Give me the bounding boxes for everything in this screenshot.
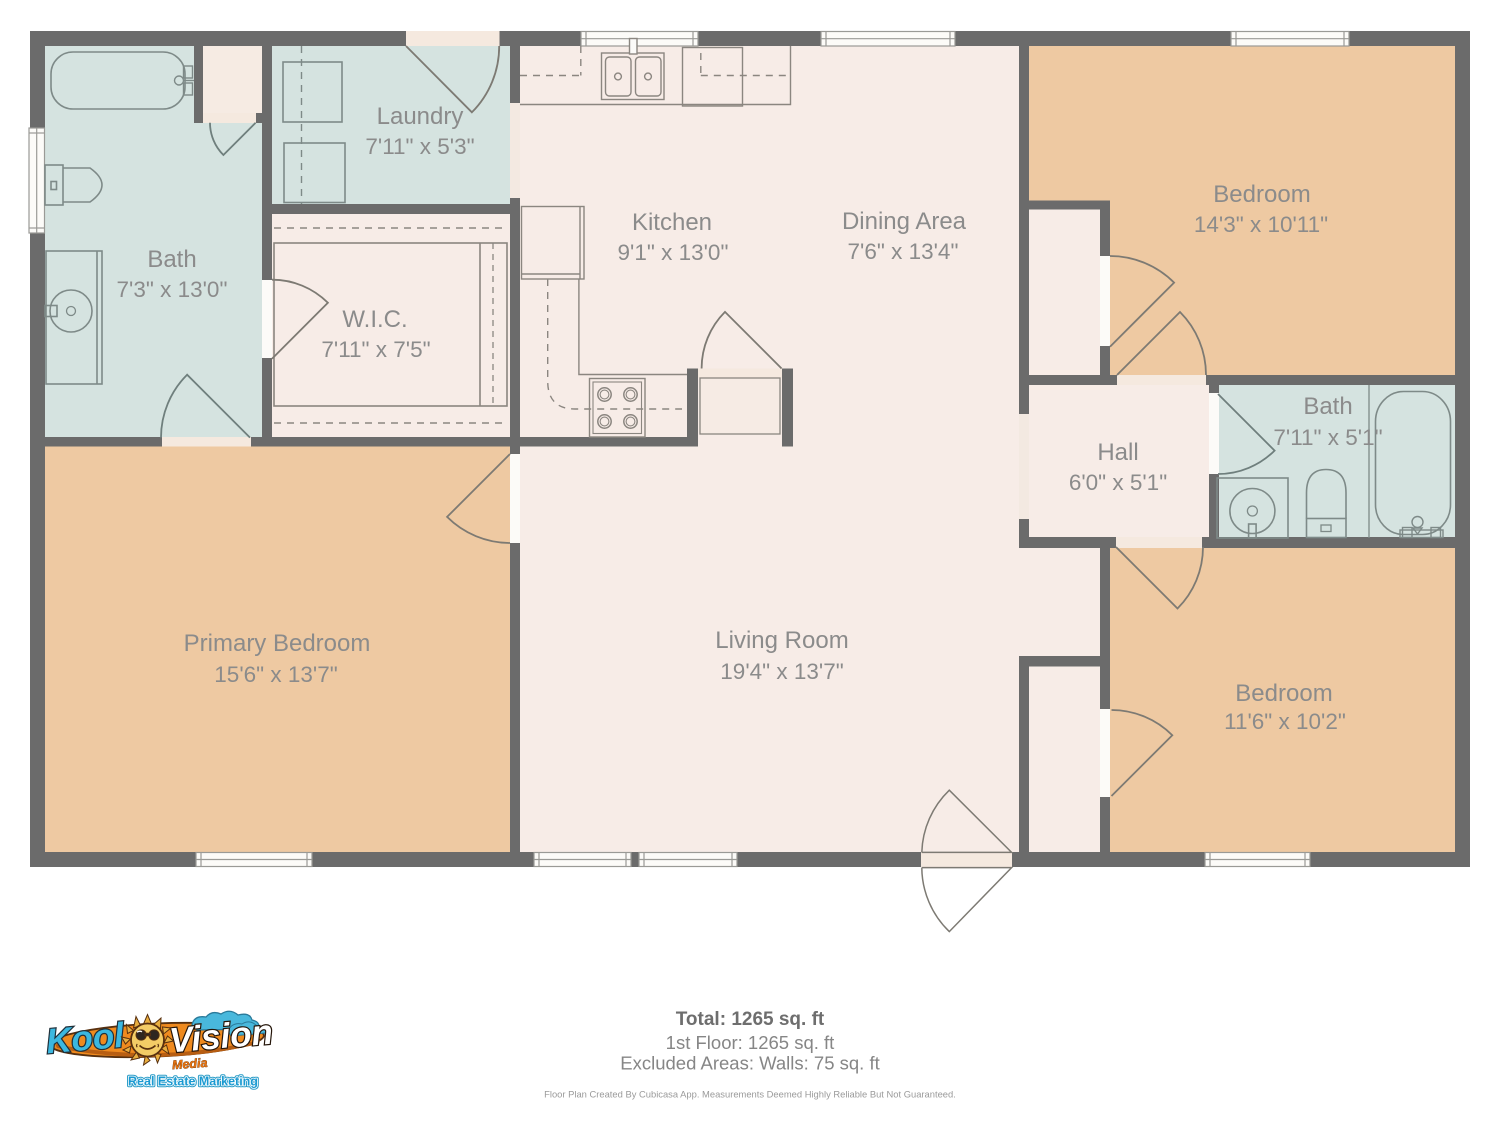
svg-text:Hall: Hall [1097,439,1138,466]
svg-text:Bath: Bath [1303,393,1352,420]
svg-text:Kitchen: Kitchen [632,209,712,236]
svg-text:6'0" x 5'1": 6'0" x 5'1" [1069,470,1167,495]
svg-text:7'11" x 5'1": 7'11" x 5'1" [1273,425,1382,450]
svg-text:Laundry: Laundry [377,103,464,130]
svg-text:7'11" x 5'3": 7'11" x 5'3" [365,134,474,159]
svg-text:Total: 1265 sq. ft: Total: 1265 sq. ft [676,1009,825,1030]
svg-text:Dining Area: Dining Area [842,208,967,235]
svg-text:7'6" x 13'4": 7'6" x 13'4" [848,239,959,264]
svg-text:11'6" x 10'2": 11'6" x 10'2" [1224,709,1346,734]
svg-text:Living Room: Living Room [715,627,848,654]
svg-text:7'11" x 7'5": 7'11" x 7'5" [321,337,430,362]
svg-text:1st Floor: 1265 sq. ft: 1st Floor: 1265 sq. ft [666,1032,835,1053]
svg-text:Bath: Bath [147,246,196,273]
svg-text:Excluded Areas: Walls: 75 sq.: Excluded Areas: Walls: 75 sq. ft [620,1053,879,1074]
svg-text:Floor Plan Created By Cubicasa: Floor Plan Created By Cubicasa App. Meas… [544,1089,956,1100]
svg-text:Bedroom: Bedroom [1235,680,1332,707]
svg-text:W.I.C.: W.I.C. [342,306,407,333]
svg-text:Vision: Vision [168,1013,275,1061]
svg-text:14'3" x 10'11": 14'3" x 10'11" [1194,212,1328,237]
svg-text:Primary Bedroom: Primary Bedroom [184,630,371,657]
svg-text:19'4" x 13'7": 19'4" x 13'7" [720,659,843,684]
svg-text:Media: Media [172,1056,208,1072]
svg-text:15'6" x 13'7": 15'6" x 13'7" [214,662,337,687]
svg-text:Kool: Kool [45,1016,127,1062]
svg-text:9'1" x 13'0": 9'1" x 13'0" [618,240,729,265]
svg-text:Bedroom: Bedroom [1213,181,1310,208]
svg-text:7'3" x 13'0": 7'3" x 13'0" [117,277,228,302]
svg-text:Real Estate Marketing: Real Estate Marketing [128,1075,258,1089]
